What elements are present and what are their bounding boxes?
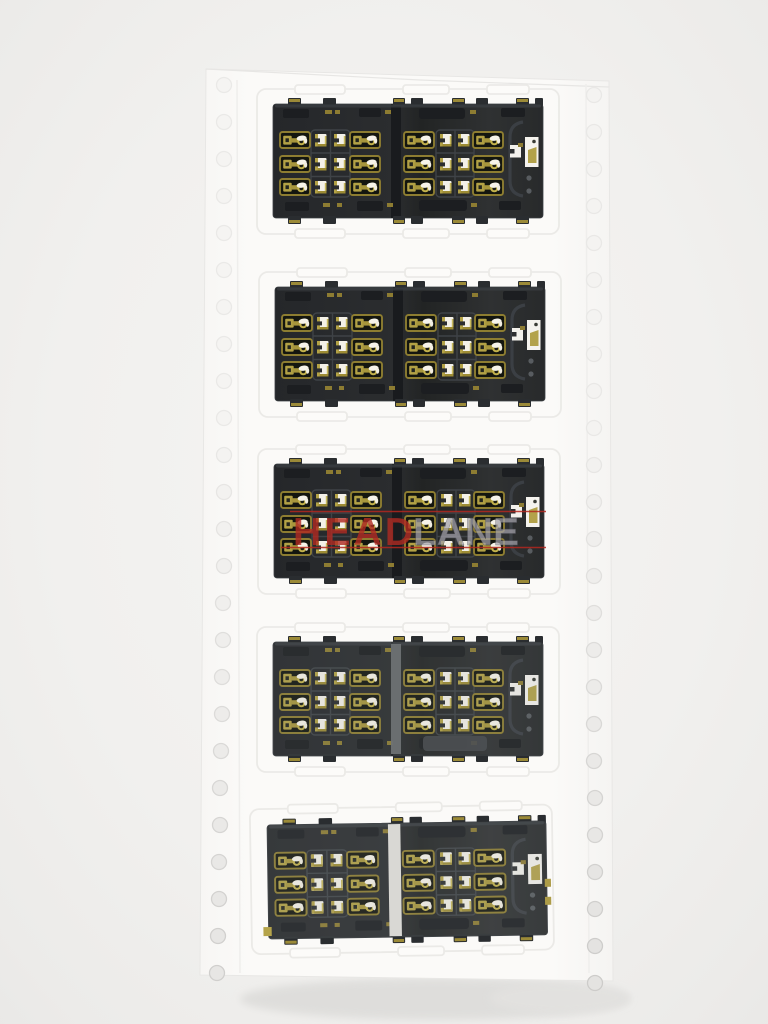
svg-text:LANE: LANE xyxy=(413,511,519,554)
svg-text:HEAD: HEAD xyxy=(293,511,413,554)
